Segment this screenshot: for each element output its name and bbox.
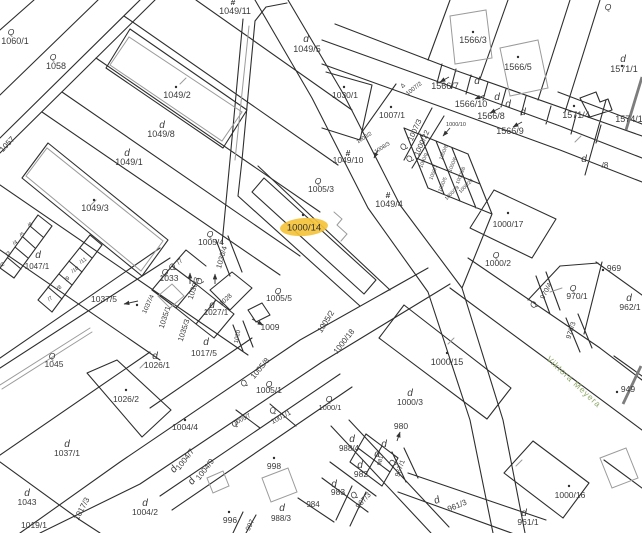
parcel-label-988-3: 988/3 — [271, 514, 292, 523]
parcel-dot — [125, 389, 127, 391]
landuse-q-icon: Q — [207, 229, 214, 239]
landuse-d-icon: d — [303, 34, 309, 45]
map-background — [0, 0, 642, 533]
parcel-label-1037-5: 1037/5 — [91, 294, 117, 304]
parcel-label-1047-1: 1047/1 — [25, 262, 50, 271]
landuse-d-icon: d — [505, 99, 511, 110]
parcel-dot — [228, 511, 230, 513]
parcel-label-949: 949 — [621, 384, 635, 394]
landuse-d-icon: d — [626, 293, 632, 304]
parcel-label-988-4: 988/4 — [339, 444, 360, 453]
parcel-dot — [302, 214, 304, 216]
parcel-label-1060-1: 1060/1 — [1, 36, 29, 46]
parcel-dot — [507, 212, 509, 214]
landuse-hash-icon: # — [346, 148, 351, 158]
parcel-label-1566-5: 1566/5 — [504, 62, 532, 72]
landuse-d-icon: d — [124, 148, 130, 159]
parcel-label-1026-2: 1026/2 — [113, 394, 139, 404]
parcel-label-1049-11: 1049/11 — [219, 6, 251, 16]
parcel-label-980: 980 — [394, 421, 408, 431]
parcel-label-1000-17: 1000/17 — [493, 219, 524, 229]
parcel-label-984: 984 — [306, 500, 320, 509]
landuse-d-icon: d — [152, 351, 158, 362]
parcel-label-1000-1: 1000/1 — [319, 403, 342, 412]
landuse-hash-icon: # — [386, 190, 391, 200]
landuse-q-icon: Q — [493, 250, 500, 260]
landuse-q-icon: Q — [50, 52, 57, 62]
parcel-dot — [573, 105, 575, 107]
parcel-label-996: 996 — [223, 515, 237, 525]
parcel-label-1058: 1058 — [46, 61, 66, 71]
parcel-label-1049-2: 1049/2 — [163, 90, 191, 100]
parcel-label-1017-5: 1017/5 — [191, 348, 217, 358]
parcel-dot — [602, 269, 604, 271]
landuse-q-icon: Q — [605, 2, 612, 12]
parcel-label-1004-4: 1004/4 — [172, 422, 198, 432]
landuse-d-icon: d — [521, 508, 527, 519]
landuse-d-icon: d — [581, 154, 587, 165]
landuse-d-icon: d — [357, 460, 363, 471]
landuse-d-icon: d — [494, 92, 500, 103]
landuse-d-icon: d — [520, 107, 526, 118]
landuse-d-icon: d — [407, 388, 413, 399]
landuse-q-icon: Q — [315, 176, 322, 186]
landuse-d-icon: d — [142, 498, 148, 509]
parcel-label-1566-3: 1566/3 — [459, 35, 487, 45]
cadastral-map[interactable]: 1049/111060/110581049/51049/21049/81049/… — [0, 0, 642, 533]
parcel-dot — [390, 106, 392, 108]
parcel-dot — [472, 31, 474, 33]
landuse-d-icon: d — [203, 337, 209, 348]
highlighted-parcel-label[interactable]: 1000/14 — [287, 223, 321, 234]
landuse-d-icon: d — [24, 488, 30, 499]
parcel-label-1019-1: 1019/1 — [21, 520, 47, 530]
parcel-label-1027-1: 1027/1 — [204, 308, 229, 317]
parcel-dot — [621, 65, 623, 67]
parcel-dot — [184, 419, 186, 421]
landuse-d-icon: d — [331, 479, 337, 490]
parcel-label-1000-10: 1000/10 — [446, 122, 466, 128]
landuse-d-icon: d — [159, 120, 165, 131]
landuse-d-icon: d — [474, 76, 480, 87]
landuse-q-icon: Q — [570, 283, 577, 293]
parcel-label-1009: 1009 — [261, 322, 280, 332]
parcel-label-969: 969 — [607, 263, 621, 273]
parcel-dot — [175, 86, 177, 88]
landuse-q-icon: Q — [49, 351, 56, 361]
landuse-q-icon: Q — [162, 267, 169, 277]
landuse-d-icon: d — [209, 300, 215, 311]
parcel-label-1000-16: 1000/16 — [555, 490, 586, 500]
parcel-dot — [568, 485, 570, 487]
parcel-dot — [273, 457, 275, 459]
parcel-dot — [93, 199, 95, 201]
parcel-label-1574-1: 1574/1 — [615, 114, 642, 124]
parcel-label-1007-1: 1007/1 — [379, 110, 405, 120]
parcel-label-1000-15: 1000/15 — [431, 357, 464, 367]
cadastral-map-viewport[interactable]: 1049/111060/110581049/51049/21049/81049/… — [0, 0, 642, 533]
landuse-d-icon: d — [381, 439, 387, 450]
parcel-label-1566-9: 1566/9 — [496, 126, 524, 136]
landuse-d-icon: d — [35, 250, 41, 261]
parcel-label-1571-1: 1571/1 — [610, 64, 638, 74]
parcel-label--8: /8 — [602, 161, 609, 170]
landuse-q-icon: Q — [326, 394, 333, 404]
parcel-dot — [517, 56, 519, 58]
landuse-hash-icon: # — [231, 0, 236, 7]
parcel-dot — [136, 304, 138, 306]
landuse-q-icon: Q — [275, 286, 282, 296]
parcel-label-1571-4: 1571/4 — [562, 110, 590, 120]
parcel-label-1566-10: 1566/10 — [455, 99, 488, 109]
landuse-d-icon: d — [349, 434, 355, 445]
parcel-dot — [446, 352, 448, 354]
landuse-q-icon: Q — [8, 27, 15, 37]
parcel-label-998: 998 — [267, 461, 281, 471]
parcel-label-1030-1: 1030/1 — [332, 90, 358, 100]
landuse-d-icon: d — [374, 449, 380, 460]
parcel-label-1049-5: 1049/5 — [293, 44, 321, 54]
landuse-q-icon: Q — [266, 379, 273, 389]
landuse-d-icon: d — [620, 54, 626, 65]
parcel-label-1049-4: 1049/4 — [375, 199, 403, 209]
landuse-d-icon: d — [64, 439, 70, 450]
landuse-d-icon: d — [279, 503, 285, 514]
parcel-label-1049-3: 1049/3 — [81, 203, 109, 213]
parcel-dot — [616, 391, 618, 393]
parcel-dot — [343, 86, 345, 88]
parcel-label-1566-7: 1566/7 — [431, 81, 459, 91]
